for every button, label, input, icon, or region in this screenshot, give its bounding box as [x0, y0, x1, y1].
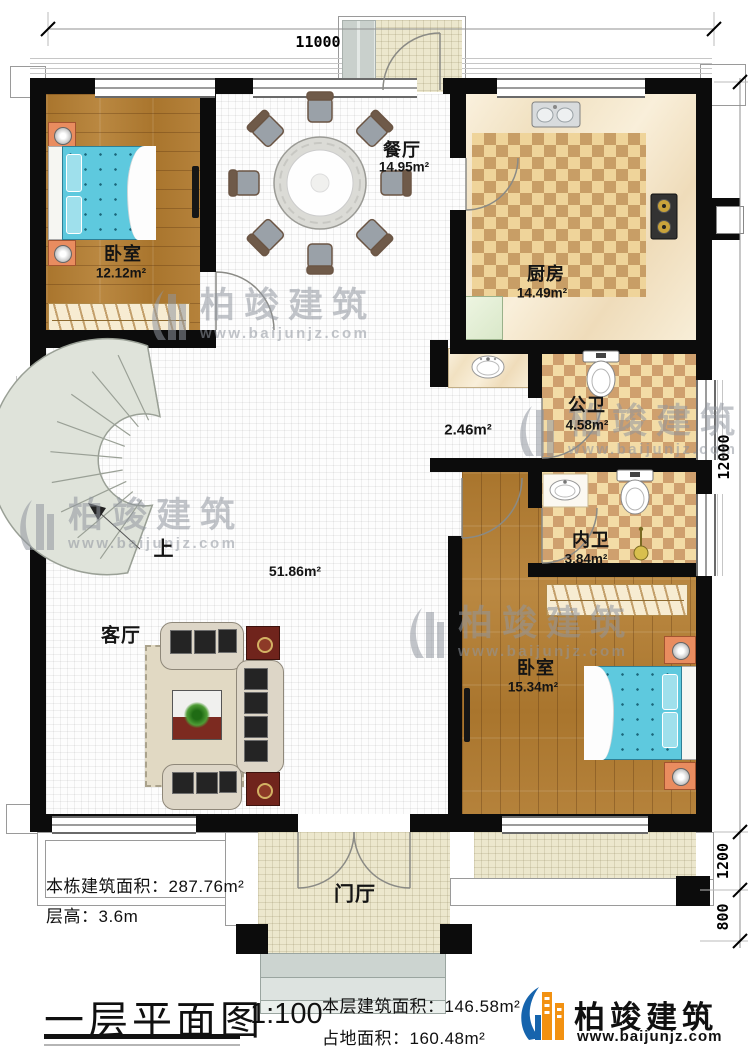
bath-public-window [696, 380, 716, 460]
building-total-area-note: 本栋建筑面积：287.76m² [46, 872, 244, 897]
wall-bedroom1-right [200, 94, 216, 272]
bath-public-area-label: 4.58m² [566, 418, 609, 433]
bath-ensuite-area-label: 3.84m² [565, 552, 608, 567]
title-underline-light [44, 1044, 240, 1046]
bath-public-name-label: 公卫 [568, 391, 606, 417]
living-side-table-bottom [246, 772, 280, 806]
bath-ensuite-floor [542, 472, 696, 563]
bedroom2-nightstand-top [664, 636, 696, 664]
terrace-floor [474, 832, 696, 878]
bedroom1-tv [192, 166, 199, 218]
bedroom2-name-label: 卧室 [517, 654, 555, 680]
living-coffee-table [172, 690, 222, 740]
bedroom1-window [95, 78, 215, 98]
sofa-cushion [244, 716, 268, 738]
terrace-column [676, 876, 710, 906]
kitchen-fridge [463, 296, 503, 340]
bath-ensuite-window [696, 494, 716, 576]
brand-logo-icon [514, 984, 568, 1044]
sofa-cushion [194, 630, 216, 654]
bedroom1-pillow-2 [66, 196, 82, 234]
bedroom1-name-label: 卧室 [104, 240, 142, 266]
title-underline [44, 1034, 240, 1039]
wall-bath-public-left [528, 354, 542, 398]
hallway-basin-counter [448, 348, 530, 388]
foyer-column-right [440, 924, 472, 954]
foyer-name-label: 门厅 [334, 878, 376, 907]
living-side-table-top [246, 626, 280, 660]
kitchen-window [497, 78, 645, 98]
dim-right-porch: 1200 [714, 843, 732, 879]
wall-kitchen-bottom [450, 340, 696, 354]
footprint-area-note: 占地面积：160.48m² [322, 1024, 485, 1049]
foyer-column-left [236, 924, 268, 954]
floor-plan-canvas: 柏竣建筑 www.baijunjz.com 柏竣建筑 www.baijunjz.… [0, 0, 750, 1058]
bedroom2-wardrobe [546, 584, 688, 616]
sofa-cushion [244, 692, 268, 714]
floor-height-note: 层高：3.6m [46, 902, 138, 927]
wall-bedroom1-bottom [30, 330, 216, 348]
sofa-cushion [196, 772, 218, 794]
bedroom2-tv [464, 688, 470, 742]
sofa-cushion [170, 630, 192, 654]
wall-hallway-stub [430, 340, 448, 387]
wall-kitchen-left-lower [450, 210, 466, 342]
bedroom2-nightstand-bottom [664, 762, 696, 790]
floor-area-note: 本层建筑面积：146.58m² [322, 992, 520, 1017]
dim-right-steps: 800 [714, 903, 732, 930]
sofa-cushion [172, 772, 194, 794]
bedroom2-window [502, 816, 648, 834]
bath-ensuite-name-label: 内卫 [572, 526, 610, 552]
kitchen-name-label: 厨房 [527, 260, 565, 286]
kitchen-flue-inner [716, 206, 744, 234]
living-window [52, 816, 196, 834]
dim-right-total: 12000 [715, 434, 733, 479]
bedroom2-pillow-1 [662, 674, 678, 710]
dining-window [253, 78, 417, 98]
living-name-label: 客厅 [101, 621, 141, 648]
dining-name-label: 餐厅 [383, 136, 421, 162]
living-area-label: 51.86m² [269, 563, 321, 579]
sofa-cushion [244, 740, 268, 762]
window-sill-left [16, 376, 30, 466]
wall-bath-ensuite-left [528, 472, 542, 508]
dim-top: 11000 [295, 33, 340, 51]
bedroom2-area-label: 15.34m² [508, 680, 558, 695]
kitchen-area-label: 14.49m² [517, 286, 567, 301]
wall-mid-horizontal [430, 458, 710, 472]
wall-kitchen-left-upper [450, 94, 466, 158]
bedroom1-nightstand-top [48, 122, 76, 148]
bedroom2-pillow-2 [662, 712, 678, 748]
wall-bedroom2-left [448, 536, 462, 814]
sofa-cushion [218, 629, 237, 653]
plan-scale: 1:100 [250, 998, 323, 1031]
bedroom1-nightstand-bottom [48, 240, 76, 266]
foyer-step-1 [260, 953, 446, 978]
bedroom1-pillow-1 [66, 154, 82, 192]
stairs-window [30, 376, 50, 466]
bath-public-floor [542, 354, 696, 458]
bedroom1-area-label: 12.12m² [96, 266, 146, 281]
wall-bath-ensuite-bottom [528, 563, 710, 577]
terrace-step-band [450, 878, 714, 906]
window-sill-top-left [30, 58, 383, 74]
dining-area-label: 14.95m² [379, 160, 429, 175]
stairs-up-label: 上 [154, 533, 175, 562]
hallway-area-label: 2.46m² [444, 422, 492, 439]
sofa-cushion [219, 771, 237, 793]
brand-url: www.baijunjz.com [577, 1028, 722, 1045]
sofa-cushion [244, 668, 268, 690]
window-sill-top-right [443, 58, 712, 74]
